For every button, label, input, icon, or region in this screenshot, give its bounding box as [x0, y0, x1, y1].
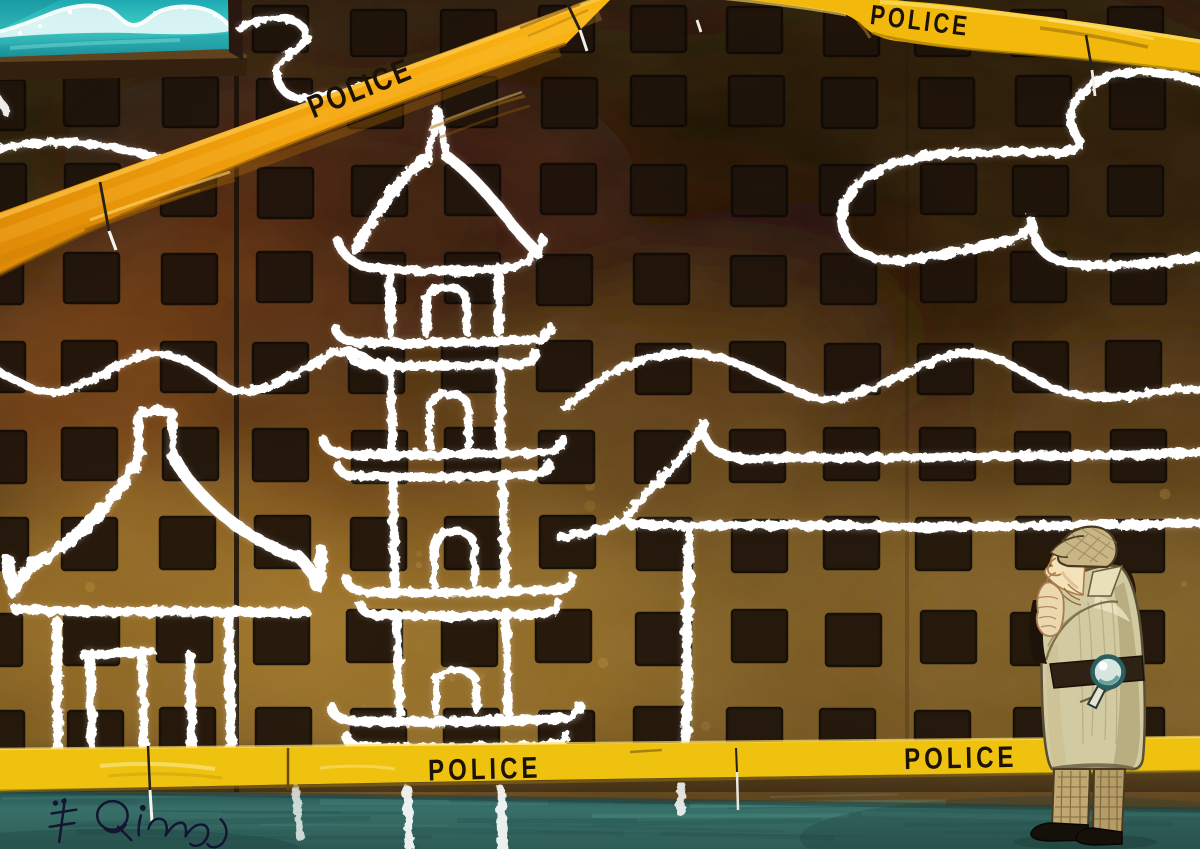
svg-text:POLICE: POLICE	[428, 750, 542, 787]
svg-text:POLICE: POLICE	[904, 739, 1018, 776]
